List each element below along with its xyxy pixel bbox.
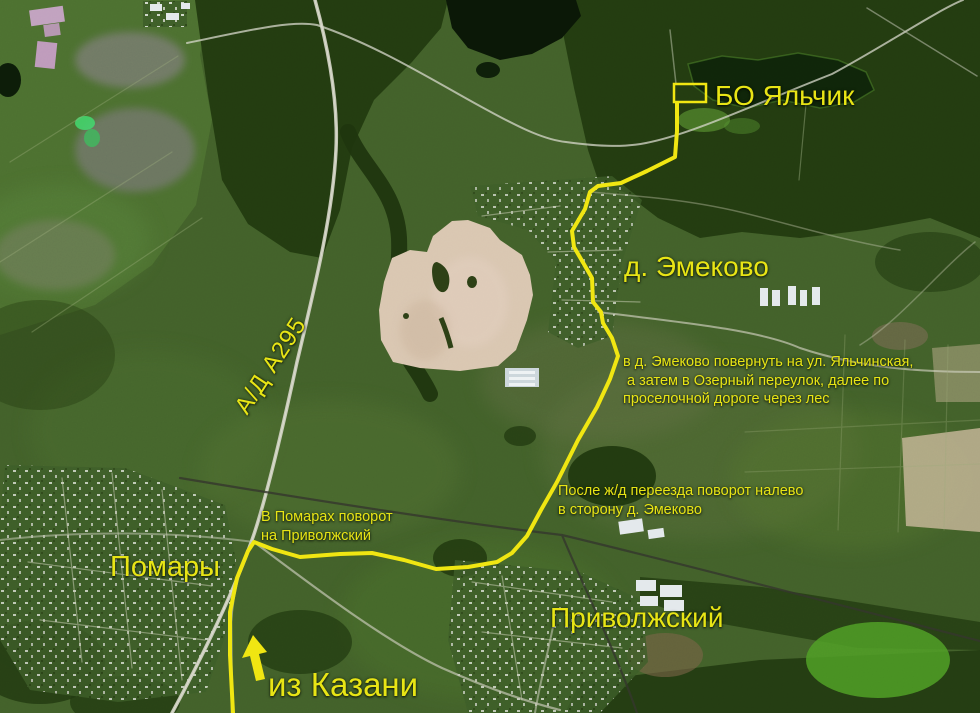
label-bo-yalchik: БО Яльчик [715,80,854,112]
label-from-kazan: из Казани [268,666,418,704]
note-railway-turn-line2: в сторону д. Эмеково [558,501,803,520]
note-emekovo-turn-line2: а затем в Озерный переулок, далее по [623,372,913,391]
note-railway-turn: После ж/д переезда поворот налево в стор… [558,482,803,519]
note-emekovo-turn-line3: проселочной дороге через лес [623,390,913,409]
label-pomary: Помары [110,551,220,584]
note-railway-turn-line1: После ж/д переезда поворот налево [558,482,803,501]
note-pomary-turn-line1: В Помарах поворот [261,508,393,527]
note-emekovo-turn: в д. Эмеково повернуть на ул. Яльчинская… [623,353,913,409]
note-emekovo-turn-line1: в д. Эмеково повернуть на ул. Яльчинская… [623,353,913,372]
note-pomary-turn-line2: на Приволжский [261,527,393,546]
route-map: БО Яльчик д. Эмеково А/Д А295 Помары При… [0,0,980,713]
label-privolzhsky: Приволжский [550,602,723,634]
label-emekovo: д. Эмеково [624,251,769,283]
note-pomary-turn: В Помарах поворот на Приволжский [261,508,393,545]
